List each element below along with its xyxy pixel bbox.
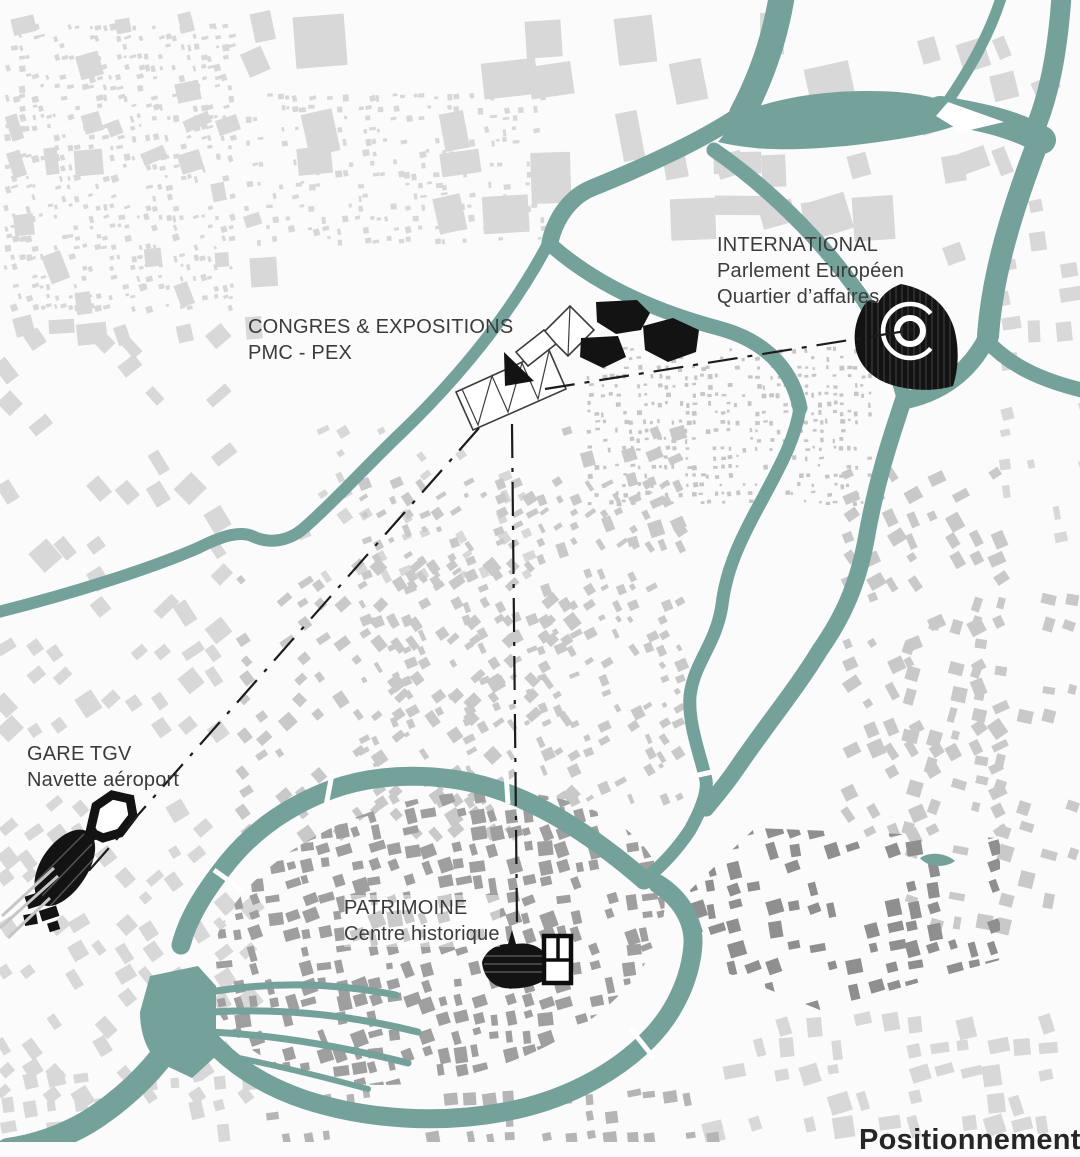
- label-gare: GARE TGV Navette aéroport: [27, 741, 179, 793]
- river-northeast-exit: [1032, 0, 1062, 136]
- link-pmc-cathedral: [512, 424, 517, 924]
- label-international-sub2: Quartier d’affaires: [717, 284, 904, 310]
- map-canvas: [0, 0, 1080, 1142]
- pond: [920, 854, 955, 866]
- label-patrimoine: PATRIMOINE Centre historique: [344, 895, 500, 947]
- river-east-exit: [986, 340, 1080, 392]
- label-congres-sub1: PMC - PEX: [248, 340, 513, 366]
- label-patrimoine-title: PATRIMOINE: [344, 895, 500, 921]
- label-congres: CONGRES & EXPOSITIONS PMC - PEX: [248, 314, 513, 366]
- label-gare-title: GARE TGV: [27, 741, 179, 767]
- label-international-sub1: Parlement Européen: [717, 258, 904, 284]
- map-caption: Positionnement: [859, 1123, 1080, 1157]
- label-patrimoine-sub1: Centre historique: [344, 921, 500, 947]
- river-ill-branch: [644, 408, 800, 880]
- label-congres-title: CONGRES & EXPOSITIONS: [248, 314, 513, 340]
- label-international: INTERNATIONAL Parlement Européen Quartie…: [717, 232, 904, 310]
- label-gare-sub1: Navette aéroport: [27, 767, 179, 793]
- gare-tgv-icon: [0, 795, 133, 938]
- label-international-title: INTERNATIONAL: [717, 232, 904, 258]
- strasbourg-positioning-map: { "map": { "caption": "Positionnement", …: [0, 0, 1080, 1142]
